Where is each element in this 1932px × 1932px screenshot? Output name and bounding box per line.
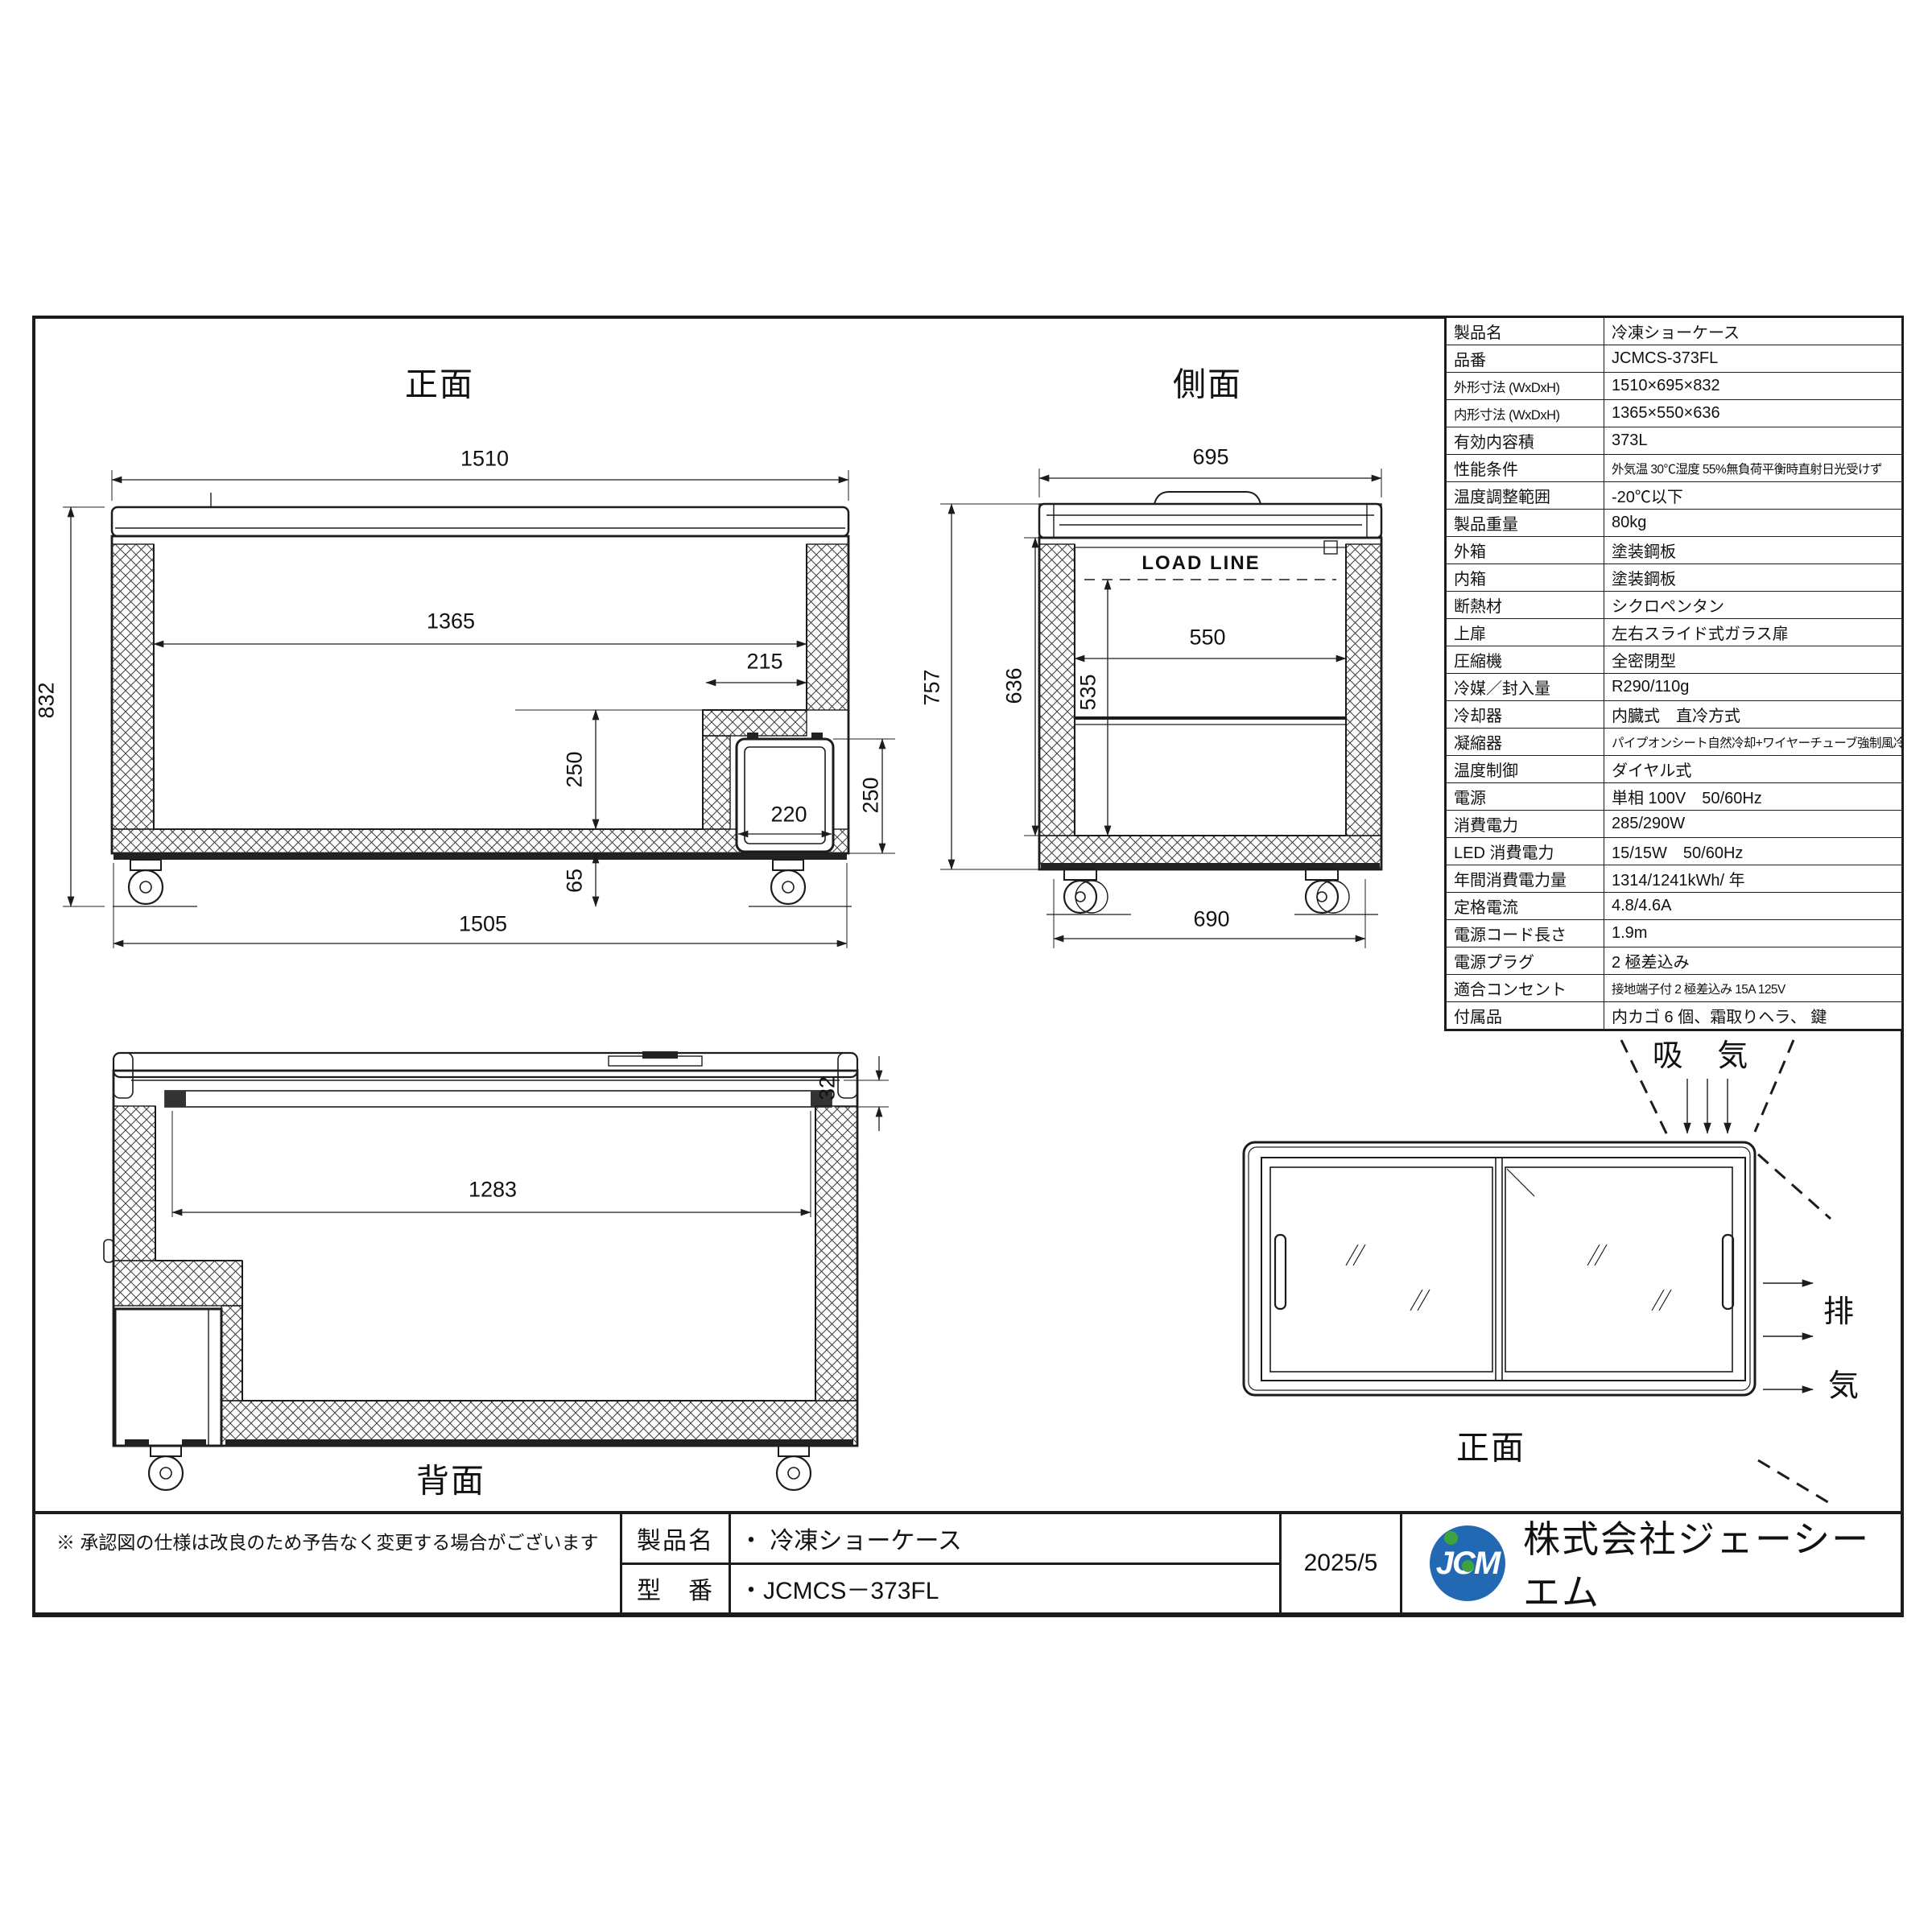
- spec-value: 外気温 30℃湿度 55%無負荷平衡時直射日光受けず: [1604, 455, 1903, 482]
- spec-label: 電源: [1446, 783, 1604, 811]
- glass-marks: [1346, 1245, 1671, 1311]
- title-block-labels: 製品名 型 番: [620, 1514, 729, 1612]
- spec-label: 定格電流: [1446, 893, 1604, 920]
- spec-value: 左右スライド式ガラス扉: [1604, 619, 1903, 646]
- spec-value: 内カゴ 6 個、霜取りヘラ、 鍵: [1604, 1002, 1903, 1030]
- title-block: ※ 承認図の仕様は改良のため予告なく変更する場合がございます 製品名 型 番 ・…: [32, 1511, 1904, 1616]
- spec-table-row: 性能条件 外気温 30℃湿度 55%無負荷平衡時直射日光受けず: [1446, 455, 1903, 482]
- load-line-label: LOAD LINE: [1141, 552, 1260, 575]
- dim-front-base-clearance: 65: [564, 869, 586, 893]
- title-block-values: ・ 冷凍ショーケース ・JCMCS－373FL: [729, 1514, 1279, 1612]
- spec-label: 上扉: [1446, 619, 1604, 646]
- dim-side-load-height: 535: [1078, 674, 1100, 710]
- spec-table-row: 外箱 塗装鋼板: [1446, 537, 1903, 564]
- spec-value: シクロペンタン: [1604, 592, 1903, 619]
- dim-front-inner-width: 1365: [427, 611, 475, 633]
- top-view-title: 正面: [1456, 1432, 1525, 1465]
- spec-table-row: 温度制御 ダイヤル式: [1446, 756, 1903, 783]
- spec-value: 塗装鋼板: [1604, 537, 1903, 564]
- spec-label: 内箱: [1446, 564, 1604, 592]
- dim-side-base-depth: 690: [1193, 909, 1229, 931]
- spec-label: 電源コード長さ: [1446, 920, 1604, 947]
- dim-side-inner-depth: 550: [1189, 627, 1225, 649]
- side-view-drawing: [940, 469, 1381, 948]
- dim-front-base-width: 1505: [459, 914, 507, 935]
- spec-label: 温度調整範囲: [1446, 482, 1604, 510]
- dim-rear-frame-thickness: 32: [817, 1076, 839, 1100]
- spec-table-row: 品番 JCMCS-373FL: [1446, 345, 1903, 373]
- spec-label: 品番: [1446, 345, 1604, 373]
- spec-table-row: 断熱材 シクロペンタン: [1446, 592, 1903, 619]
- spec-table-row: 有効内容積 373L: [1446, 427, 1903, 455]
- dim-rear-opening-width: 1283: [469, 1179, 517, 1201]
- front-view-drawing: [63, 470, 895, 948]
- spec-label: 適合コンセント: [1446, 975, 1604, 1002]
- spec-label: 製品重量: [1446, 510, 1604, 537]
- spec-value: パイプオンシート自然冷却+ワイヤーチューブ強制風冷方式: [1604, 729, 1903, 756]
- spec-value: 冷凍ショーケース: [1604, 317, 1903, 345]
- spec-table-row: LED 消費電力 15/15W 50/60Hz: [1446, 838, 1903, 865]
- dim-front-unit-door-width: 220: [770, 804, 807, 826]
- spec-value: 単相 100V 50/60Hz: [1604, 783, 1903, 811]
- drawing-sheet: 正面 側面 背面 正面 LOAD LINE 1510 832 1365 215 …: [0, 0, 1932, 1932]
- side-view-title: 側面: [1173, 369, 1242, 402]
- spec-value: 373L: [1604, 427, 1903, 455]
- spec-value: 接地端子付 2 極差込み 15A 125V: [1604, 975, 1903, 1002]
- spec-label: 内形寸法 (WxDxH): [1446, 400, 1604, 427]
- model-number-value: ・JCMCS－373FL: [731, 1565, 1279, 1613]
- spec-table-row: 製品名 冷凍ショーケース: [1446, 317, 1903, 345]
- spec-value: 1.9m: [1604, 920, 1903, 947]
- spec-table-row: 定格電流 4.8/4.6A: [1446, 893, 1903, 920]
- spec-label: 消費電力: [1446, 811, 1604, 838]
- spec-table-row: 内形寸法 (WxDxH) 1365×550×636: [1446, 400, 1903, 427]
- spec-table-row: 凝縮器 パイプオンシート自然冷却+ワイヤーチューブ強制風冷方式: [1446, 729, 1903, 756]
- spec-value: ダイヤル式: [1604, 756, 1903, 783]
- dim-front-step-width: 215: [746, 651, 782, 673]
- spec-table-row: 内箱 塗装鋼板: [1446, 564, 1903, 592]
- spec-value: 2 極差込み: [1604, 947, 1903, 975]
- spec-value: 285/290W: [1604, 811, 1903, 838]
- dim-front-overall-width: 1510: [460, 448, 509, 470]
- disclaimer-cell: ※ 承認図の仕様は改良のため予告なく変更する場合がございます: [35, 1514, 620, 1612]
- product-name-label: 製品名: [622, 1514, 729, 1565]
- spec-label: 断熱材: [1446, 592, 1604, 619]
- rear-view-title: 背面: [416, 1465, 485, 1498]
- drawing-date: 2025/5: [1279, 1514, 1400, 1612]
- spec-label: LED 消費電力: [1446, 838, 1604, 865]
- spec-value: JCMCS-373FL: [1604, 345, 1903, 373]
- spec-table-row: 冷却器 内臓式 直冷方式: [1446, 701, 1903, 729]
- dim-side-body-height: 757: [922, 669, 943, 705]
- spec-value: 全密閉型: [1604, 646, 1903, 674]
- rear-view-drawing: [104, 1051, 889, 1490]
- spec-table-row: 付属品 内カゴ 6 個、霜取りヘラ、 鍵: [1446, 1002, 1903, 1030]
- spec-value: 内臓式 直冷方式: [1604, 701, 1903, 729]
- company-name: 株式会社ジェーシーエム: [1523, 1510, 1901, 1616]
- spec-table-row: 電源コード長さ 1.9m: [1446, 920, 1903, 947]
- logo-green-dot-center: [1462, 1560, 1474, 1572]
- spec-label: 年間消費電力量: [1446, 865, 1604, 893]
- exhaust-label-1: 排: [1823, 1297, 1854, 1327]
- spec-table-row: 製品重量 80kg: [1446, 510, 1903, 537]
- exhaust-label-2: 気: [1828, 1371, 1859, 1402]
- spec-label: 圧縮機: [1446, 646, 1604, 674]
- top-view-drawing: [1244, 1040, 1831, 1504]
- product-name-value: ・ 冷凍ショーケース: [731, 1514, 1279, 1565]
- side-dimension-lines: [940, 469, 1381, 948]
- spec-value: 1510×695×832: [1604, 373, 1903, 400]
- spec-value: 15/15W 50/60Hz: [1604, 838, 1903, 865]
- spec-label: 外箱: [1446, 537, 1604, 564]
- jcm-logo-icon: JCM: [1430, 1525, 1505, 1601]
- spec-label: 冷媒／封入量: [1446, 674, 1604, 701]
- spec-table-row: 圧縮機 全密閉型: [1446, 646, 1903, 674]
- spec-value: 80kg: [1604, 510, 1903, 537]
- spec-value: 1365×550×636: [1604, 400, 1903, 427]
- dim-front-overall-height: 832: [36, 682, 58, 718]
- spec-label: 冷却器: [1446, 701, 1604, 729]
- spec-table-row: 温度調整範囲 -20℃以下: [1446, 482, 1903, 510]
- spec-table-row: 上扉 左右スライド式ガラス扉: [1446, 619, 1903, 646]
- intake-label: 吸 気: [1653, 1041, 1761, 1071]
- front-casters: [113, 860, 852, 906]
- exhaust-arrows: [1758, 1154, 1831, 1504]
- company-cell: JCM 株式会社ジェーシーエム: [1400, 1514, 1901, 1612]
- spec-value: -20℃以下: [1604, 482, 1903, 510]
- spec-table-row: 外形寸法 (WxDxH) 1510×695×832: [1446, 373, 1903, 400]
- spec-value: 4.8/4.6A: [1604, 893, 1903, 920]
- spec-label: 性能条件: [1446, 455, 1604, 482]
- spec-label: 有効内容積: [1446, 427, 1604, 455]
- spec-table: 製品名 冷凍ショーケース 品番 JCMCS-373FL 外形寸法 (WxDxH)…: [1444, 316, 1904, 1031]
- spec-table-row: 電源プラグ 2 極差込み: [1446, 947, 1903, 975]
- spec-value: R290/110g: [1604, 674, 1903, 701]
- disclaimer-text: ※ 承認図の仕様は改良のため予告なく変更する場合がございます: [56, 1532, 598, 1553]
- model-number-label: 型 番: [622, 1565, 729, 1613]
- spec-table-row: 消費電力 285/290W: [1446, 811, 1903, 838]
- spec-table-row: 電源 単相 100V 50/60Hz: [1446, 783, 1903, 811]
- spec-value: 1314/1241kWh/ 年: [1604, 865, 1903, 893]
- dim-front-step-height: 250: [564, 751, 586, 787]
- spec-label: 電源プラグ: [1446, 947, 1604, 975]
- spec-table-row: 適合コンセント 接地端子付 2 極差込み 15A 125V: [1446, 975, 1903, 1002]
- dim-side-overall-depth: 695: [1192, 447, 1228, 469]
- logo-green-dot-top: [1444, 1531, 1458, 1545]
- spec-value: 塗装鋼板: [1604, 564, 1903, 592]
- front-view-title: 正面: [405, 369, 474, 402]
- spec-label: 外形寸法 (WxDxH): [1446, 373, 1604, 400]
- spec-label: 製品名: [1446, 317, 1604, 345]
- spec-table-row: 冷媒／封入量 R290/110g: [1446, 674, 1903, 701]
- dim-side-inner-height: 636: [1004, 667, 1026, 704]
- spec-label: 付属品: [1446, 1002, 1604, 1030]
- spec-table-row: 年間消費電力量 1314/1241kWh/ 年: [1446, 865, 1903, 893]
- dim-front-unit-door-height: 250: [861, 777, 882, 813]
- spec-label: 凝縮器: [1446, 729, 1604, 756]
- spec-label: 温度制御: [1446, 756, 1604, 783]
